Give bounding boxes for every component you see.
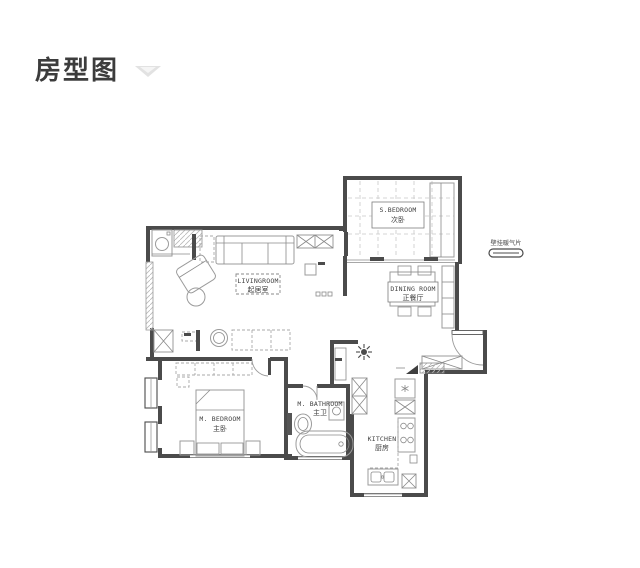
radiator-label: 壁挂暖气片 xyxy=(491,239,522,247)
nightstand-icon xyxy=(246,441,260,455)
sink-icon xyxy=(368,469,398,485)
small-annotation-mark xyxy=(339,228,347,231)
bay-window xyxy=(145,378,157,408)
kitchen-label-zh: 厨房 xyxy=(375,443,389,452)
counter-edge xyxy=(370,418,398,468)
corridor-cabinets xyxy=(352,378,367,414)
master-bedroom-label-en: M. BEDROOM xyxy=(199,415,240,423)
dining-room: DINING ROOM 正餐厅 xyxy=(388,266,454,328)
wardrobe-icon xyxy=(430,183,454,257)
hall-closet xyxy=(335,348,346,380)
second-bedroom-label-en: S.BEDROOM xyxy=(379,206,416,214)
kitchen: KITCHEN 厨房 xyxy=(352,378,417,488)
fridge-icon xyxy=(395,379,415,398)
small-annotation-mark xyxy=(318,262,325,265)
kitchen-label-en: KITCHEN xyxy=(368,435,397,443)
master-bathroom-label-zh: 主卫 xyxy=(313,408,327,417)
bed-icon xyxy=(196,390,244,456)
column xyxy=(305,264,316,275)
small-annotation-mark xyxy=(335,358,342,361)
master-bedroom-label-zh: 主卧 xyxy=(213,424,227,433)
floor-plan: LIVINGROOM 起居室 xyxy=(0,0,640,568)
door-leaf xyxy=(344,232,348,256)
storage-cabinet-icon xyxy=(297,235,333,248)
bay-window xyxy=(145,422,157,452)
sliding-door-leaf xyxy=(192,234,196,260)
dining-room-label-zh: 正餐厅 xyxy=(403,293,424,302)
sliding-partition xyxy=(347,257,455,263)
radiator-annotation: 壁挂暖气片 xyxy=(489,239,523,257)
washing-machine-icon xyxy=(152,230,172,256)
dining-room-label-en: DINING ROOM xyxy=(390,285,435,293)
tv-console-strip xyxy=(154,330,290,353)
window-kitchen-bottom xyxy=(364,494,402,497)
switch-box xyxy=(410,455,417,463)
master-bedroom: M. BEDROOM 主卧 xyxy=(176,358,271,456)
windows xyxy=(145,262,402,497)
master-bathroom-label-en: M. BATHROOM xyxy=(297,400,342,408)
balcony xyxy=(152,230,202,260)
cabinet-x xyxy=(395,400,415,414)
stove-icon xyxy=(398,418,415,452)
tv-cabinet xyxy=(232,330,290,350)
stool-icon xyxy=(211,330,228,347)
living-room-label-zh: 起居室 xyxy=(248,285,269,294)
sideboard-icon xyxy=(442,266,454,328)
living-room-label-en: LIVINGROOM xyxy=(237,277,278,285)
shoe-boxes xyxy=(316,292,332,296)
bathroom-door-icon xyxy=(303,386,317,400)
entry-door-icon xyxy=(452,331,483,366)
door-leaf xyxy=(196,330,200,351)
gas-meter-icon xyxy=(356,344,372,360)
second-bedroom-label-zh: 次卧 xyxy=(391,215,405,224)
wardrobe-dashed xyxy=(176,363,252,387)
small-annotation-mark xyxy=(184,333,191,336)
bathtub-icon xyxy=(296,431,353,457)
floor-plan-page: 房型图 xyxy=(0,0,640,568)
sofa-icon xyxy=(216,236,294,264)
kitchen-sliding-door-icon xyxy=(396,363,444,374)
nightstand-icon xyxy=(180,441,194,455)
cabinet-x xyxy=(402,474,416,488)
toilet-icon xyxy=(287,413,312,435)
master-bathroom: M. BATHROOM 主卫 xyxy=(287,386,353,457)
balcony-counter xyxy=(174,230,202,247)
bedroom-door-icon xyxy=(252,358,271,376)
second-bedroom: S.BEDROOM 次卧 xyxy=(344,181,455,263)
